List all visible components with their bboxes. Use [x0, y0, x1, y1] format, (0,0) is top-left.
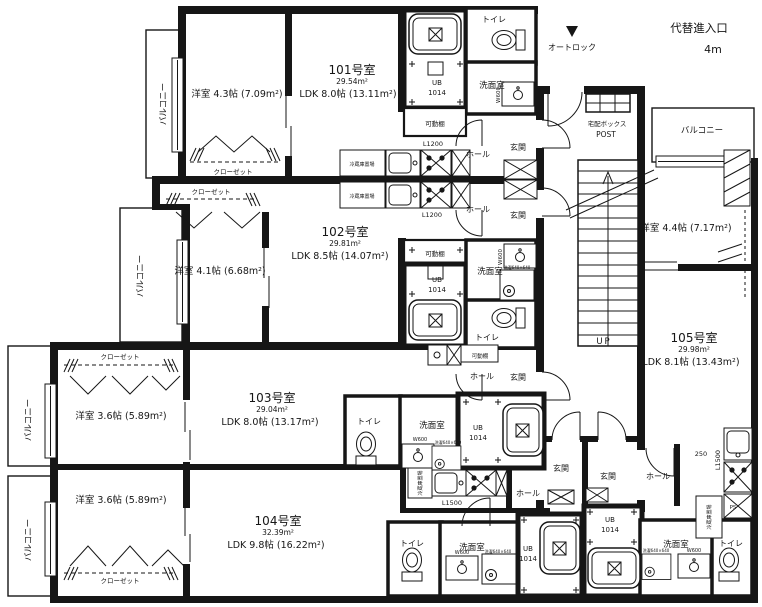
unit-104-ldk: LDK 9.8帖 (16.22m²): [227, 539, 324, 551]
unit-102-ldk: LDK 8.5帖 (14.07m²): [291, 250, 388, 262]
w600-label-103: W600: [413, 437, 428, 443]
washbasin-101: [502, 82, 534, 106]
bathtub-103: [503, 404, 543, 456]
unit-103-bedroom: 洋室 3.6帖 (5.89m²): [75, 410, 166, 422]
ub-101-l1: UB: [432, 79, 442, 87]
l1200-label-101: L1200: [423, 140, 443, 148]
shelf-label-102: 可動棚: [425, 249, 445, 258]
delivery-box: [586, 94, 630, 112]
balcony-label-101: バルコニー: [159, 83, 169, 125]
toilet-103: [356, 432, 376, 465]
washer-label-102: 洗濯640×640: [504, 264, 531, 270]
bathtub-101: [409, 14, 461, 54]
fridge-label-101: 冷蔵庫置場: [349, 161, 374, 168]
window-104: [45, 502, 56, 576]
washer-label-104: 洗濯640×640: [485, 548, 512, 554]
ps-label: PS: [730, 505, 737, 511]
ub-101-l2: 1014: [428, 89, 446, 97]
closets: [64, 136, 280, 580]
l1500-label-104: L1500: [442, 499, 462, 507]
main-entrance-door: [548, 92, 582, 126]
fridge-label-105: 冷蔵庫置場: [706, 504, 713, 529]
unit-104-name: 104号室: [255, 513, 302, 528]
unit-105-ldk: LDK 8.1帖 (13.43m²): [642, 356, 739, 368]
washer-pan-103: [432, 446, 461, 472]
bathtub-102: [409, 300, 461, 340]
toilet-label-101: トイレ: [482, 15, 506, 24]
closet-102: [166, 193, 260, 228]
unit-105-entry-door: [598, 412, 626, 440]
washroom-label-103: 洗面室: [419, 420, 445, 431]
toilet-101: [492, 30, 525, 50]
closet-103: [64, 359, 180, 394]
w600-label-104: W600: [455, 550, 470, 556]
window-102: [177, 240, 188, 324]
closet-label-103: クローゼット: [101, 352, 140, 361]
bathtub-105: [588, 548, 640, 588]
window-103: [45, 384, 56, 458]
autolock-label: オートロック: [548, 43, 596, 52]
un101-entry-door: [542, 120, 570, 148]
hall-103: ホール: [470, 372, 494, 381]
unit-102-bedroom: 洋室 4.1帖 (6.68m²): [174, 265, 265, 277]
hall-101: ホール: [466, 150, 490, 159]
washbasin-103: [402, 444, 434, 468]
ub-105-l2: 1014: [601, 526, 619, 534]
unit-101-area: 29.54m²: [336, 77, 368, 86]
w600-label-105: W600: [687, 548, 702, 554]
autolock-marker-icon: [566, 26, 578, 37]
closet-104: [64, 546, 184, 580]
ub-105-l1: UB: [605, 516, 615, 524]
post-label: POST: [596, 130, 616, 139]
closet-label-102: クローゼット: [192, 187, 231, 196]
unit-101-ldk: LDK 8.0帖 (13.11m²): [299, 88, 396, 100]
ub-103-l2: 1014: [469, 434, 487, 442]
washbasin-105: [678, 554, 710, 578]
toilet-label-102: トイレ: [475, 333, 499, 342]
unit-102-entry-door: [542, 188, 570, 216]
ub-104-l1: UB: [523, 545, 533, 553]
unit-101-name: 101号室: [329, 62, 376, 77]
unit-103-area: 29.04m²: [256, 405, 288, 414]
toilet-label-103: トイレ: [357, 417, 381, 426]
alt-entry-size: 4m: [704, 43, 722, 56]
unit-103-ldk: LDK 8.0帖 (13.17m²): [221, 416, 318, 428]
toilet-102: [492, 308, 525, 328]
closet-label-101: クローゼット: [214, 167, 253, 176]
washer-pan-102: [500, 270, 534, 300]
alt-entry-label: 代替進入口: [670, 21, 728, 35]
closet-label-104: クローゼット: [101, 576, 140, 585]
ub-102-l1: UB: [432, 276, 442, 284]
genkan-105: 玄関: [600, 471, 616, 481]
shelf-label-103: 可動棚: [472, 352, 489, 360]
balcony-102: [120, 208, 182, 342]
unit-101-bedroom: 洋室 4.3帖 (7.09m²): [191, 88, 282, 100]
up-label: UP: [596, 337, 611, 347]
unit-104-entry-door: [552, 412, 580, 440]
balcony-label-104: バルコニー: [24, 519, 34, 561]
w600-label-102: W600: [498, 249, 504, 265]
dim-250: 250: [695, 450, 707, 458]
unit-104-area: 32.39m²: [262, 528, 294, 537]
toilet-105: [719, 548, 739, 581]
unit-104-bedroom: 洋室 3.6帖 (5.89m²): [75, 494, 166, 506]
bathtub-104: [540, 522, 580, 574]
genkan-102: 玄関: [510, 210, 526, 220]
unit-102-name: 102号室: [322, 224, 369, 239]
toilet-label-105: トイレ: [719, 539, 743, 548]
unit-105-area: 29.98m²: [678, 345, 710, 354]
washer-label-103: 洗濯640×640: [435, 439, 462, 445]
hall-102: ホール: [466, 205, 490, 214]
l1500-label-105: L1500: [714, 450, 722, 470]
fridge-label-102: 冷蔵庫置場: [349, 193, 374, 200]
washer-pan-105: [642, 554, 671, 580]
toilet-label-104: トイレ: [400, 539, 424, 548]
balcony-label-102: バルコニー: [136, 255, 146, 297]
genkan-103: 玄関: [510, 372, 526, 382]
closet-101: [190, 136, 280, 162]
fridge-label-104: 冷蔵庫置場: [417, 470, 424, 495]
washroom-label-102: 洗面室: [477, 266, 503, 277]
shelf-label-101: 可動棚: [425, 119, 445, 128]
toilet-104: [402, 548, 422, 581]
unit-102-area: 29.81m²: [329, 239, 361, 248]
hall-105: ホール: [646, 472, 670, 481]
ub-104-l2: 1014: [519, 555, 537, 563]
genkan-104: 玄関: [553, 463, 569, 473]
ub-103-l1: UB: [473, 424, 483, 432]
floor-plan-page: 代替進入口 4m オートロック 宅配ボックス POST UP 250 PS 10…: [0, 0, 762, 607]
balcony-label-105: バルコニー: [681, 126, 723, 136]
floor-plan-svg: 代替進入口 4m オートロック 宅配ボックス POST UP 250 PS 10…: [0, 0, 762, 607]
genkan-101: 玄関: [510, 142, 526, 152]
unit-105-name: 105号室: [671, 330, 718, 345]
delivery-box-label: 宅配ボックス: [588, 119, 627, 128]
w600-label-101: W600: [496, 87, 502, 103]
ub-102-l2: 1014: [428, 286, 446, 294]
balcony-label-103: バルコニー: [24, 399, 34, 441]
washer-label-105: 洗濯640×640: [643, 547, 670, 553]
unit-105-bedroom: 洋室 4.4帖 (7.17m²): [640, 222, 731, 234]
l1200-label-102: L1200: [422, 211, 442, 219]
washbasin-104: [446, 556, 478, 580]
hall-104: ホール: [516, 489, 540, 498]
unit-103-name: 103号室: [249, 390, 296, 405]
window-101: [172, 58, 183, 152]
washer-pan-104: [482, 554, 516, 584]
